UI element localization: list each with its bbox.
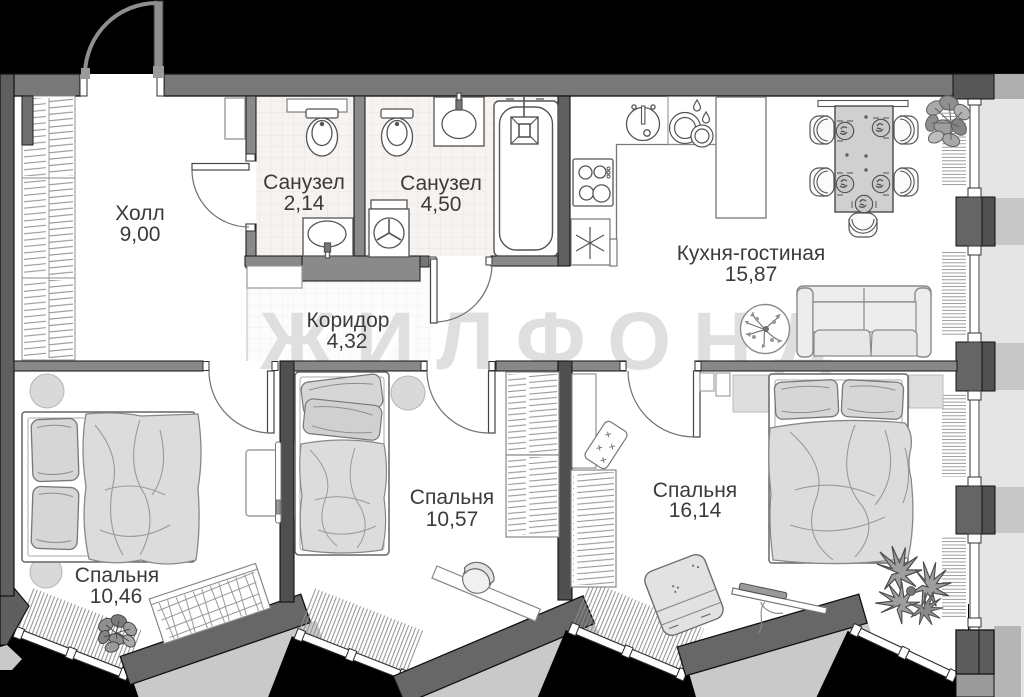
svg-text:2,14: 2,14 [284, 192, 325, 215]
svg-text:10,57: 10,57 [426, 508, 479, 531]
svg-text:10,46: 10,46 [90, 585, 143, 608]
svg-text:4,32: 4,32 [327, 330, 368, 353]
svg-text:Спальня: Спальня [410, 486, 494, 509]
svg-text:Санузел: Санузел [263, 171, 345, 194]
svg-text:15,87: 15,87 [725, 263, 778, 286]
svg-text:9,00: 9,00 [120, 223, 161, 246]
svg-text:Холл: Холл [115, 202, 165, 225]
svg-text:Санузел: Санузел [400, 172, 482, 195]
svg-text:Спальня: Спальня [75, 564, 159, 587]
svg-text:4,50: 4,50 [421, 193, 462, 216]
svg-text:Кухня-гостиная: Кухня-гостиная [677, 242, 826, 265]
svg-text:16,14: 16,14 [669, 499, 722, 522]
svg-text:Коридор: Коридор [307, 309, 390, 332]
